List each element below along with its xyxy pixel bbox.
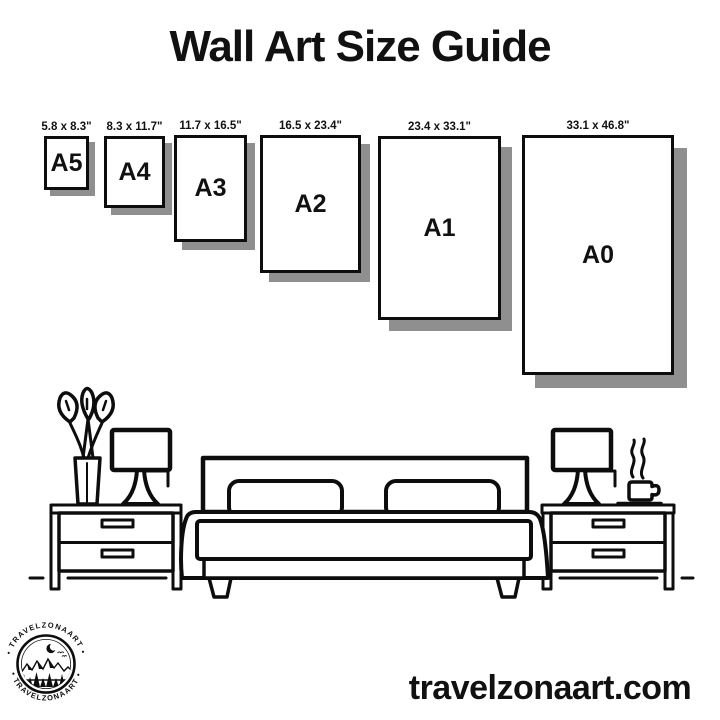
bed-base (204, 559, 524, 578)
size-item-a5: 5.8 x 8.3" A5 (44, 136, 89, 190)
size-dimensions-label: 16.5 x 23.4" (279, 120, 342, 132)
drawer-handle (102, 520, 133, 527)
size-name-label: A2 (295, 190, 327, 219)
size-rect-a1: A1 (378, 136, 501, 320)
size-dimensions-label: 23.4 x 33.1" (408, 121, 471, 133)
size-rect-a5: A5 (44, 136, 89, 190)
bed-foot-right (497, 578, 519, 597)
size-item-a2: 16.5 x 23.4" A2 (260, 135, 361, 273)
page-title: Wall Art Size Guide (0, 22, 720, 72)
size-rect-a4: A4 (104, 136, 165, 208)
size-item-a3: 11.7 x 16.5" A3 (174, 135, 247, 242)
size-item-a1: 23.4 x 33.1" A1 (378, 136, 501, 320)
size-dimensions-label: 11.7 x 16.5" (179, 120, 241, 132)
drawer-handle (593, 520, 624, 527)
size-name-label: A3 (195, 174, 227, 203)
size-dimensions-label: 8.3 x 11.7" (107, 121, 163, 133)
table-lamp-left-icon (112, 430, 170, 504)
size-item-a4: 8.3 x 11.7" A4 (104, 136, 165, 208)
bed-foot-left (209, 578, 231, 597)
size-dimensions-label: 33.1 x 46.8" (566, 120, 629, 132)
size-name-label: A5 (51, 149, 83, 178)
size-rect-a0: A0 (522, 135, 674, 375)
coffee-cup-icon (618, 439, 661, 504)
nightstand-right (542, 505, 674, 589)
table-lamp-right-icon (553, 430, 615, 504)
size-item-a0: 33.1 x 46.8" A0 (522, 135, 674, 375)
website-url: travelzonaart.com (380, 669, 720, 708)
plant-vase-icon (59, 389, 114, 505)
drawer-handle (593, 550, 624, 557)
bedroom-scene-illustration (0, 378, 720, 600)
size-dimensions-label: 5.8 x 8.3" (41, 121, 91, 133)
duvet-front-panel (197, 521, 531, 559)
wall-art-size-guide-poster: Wall Art Size Guide 5.8 x 8.3" A5 8.3 x … (0, 0, 720, 720)
nightstand-left (51, 505, 181, 589)
bed-illustration (181, 458, 548, 597)
size-rect-a3: A3 (174, 135, 247, 242)
drawer-handle (102, 550, 133, 557)
travelzonaart-logo-badge: • TRAVELZONAART • • TRAVELZONAART • (0, 618, 92, 710)
size-rect-a2: A2 (260, 135, 361, 273)
size-name-label: A0 (582, 241, 614, 270)
size-name-label: A1 (424, 214, 456, 243)
size-name-label: A4 (119, 158, 151, 187)
